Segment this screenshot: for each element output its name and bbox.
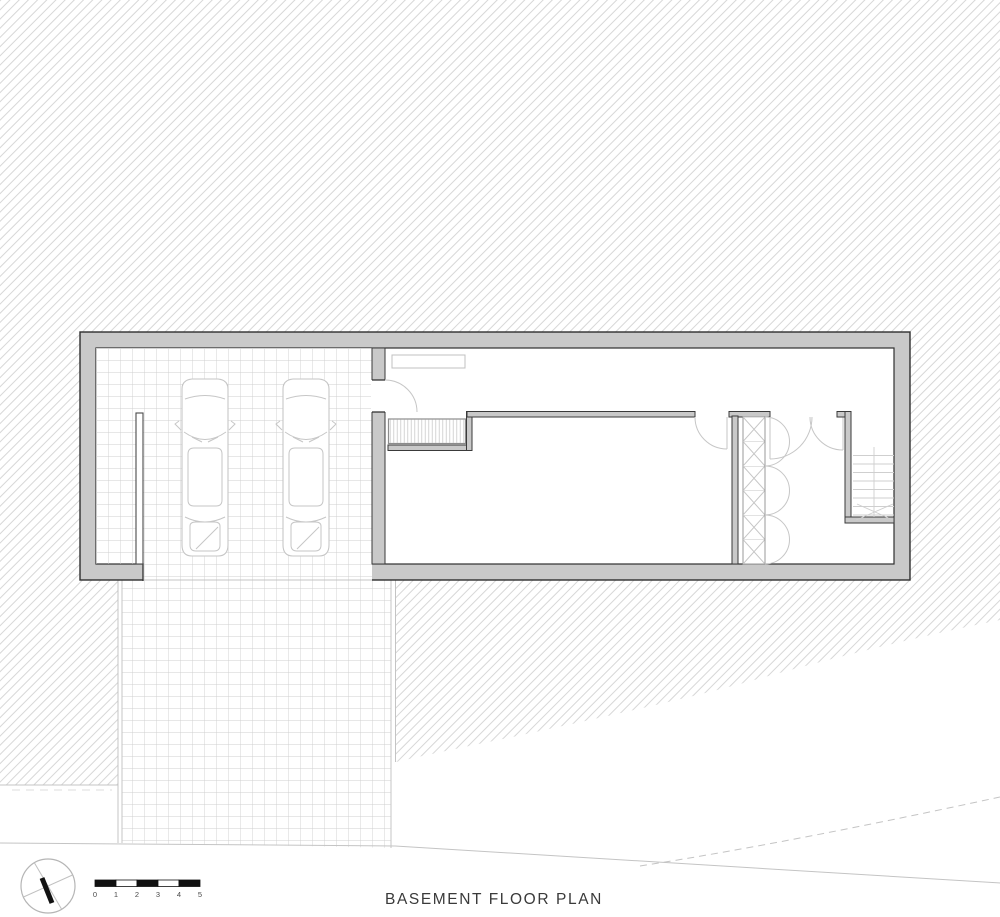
stair-right-wall [845,412,851,523]
scale-bar: 0 1 2 3 4 5 [93,880,202,899]
car-1 [175,379,235,556]
floor-plan-drawing: 0 1 2 3 4 5 BASEMENT FLOOR PLAN [0,0,1000,917]
stair-right-wall-bottom [845,517,894,523]
scale-label-1: 1 [114,890,118,899]
stair-side-wall [388,445,472,451]
terrain-contour-solid [0,843,1000,883]
car-2 [276,379,336,556]
closet-wall [732,416,738,564]
scale-label-5: 5 [198,890,202,899]
garage-wall-stub [136,413,143,564]
scale-label-3: 3 [156,890,160,899]
scale-label-4: 4 [177,890,181,899]
basement-floor-plan-sheet: 0 1 2 3 4 5 BASEMENT FLOOR PLAN [0,0,1000,917]
driveway [118,580,396,848]
garage-opening-paving [143,563,372,581]
terrain-contour-dashed [640,797,1000,866]
building [80,332,910,581]
driveway-edge-east [391,580,396,848]
scale-label-0: 0 [93,890,97,899]
scale-label-2: 2 [135,890,139,899]
stair-main [388,419,472,451]
counter-shelf [392,355,465,368]
page-title: BASEMENT FLOOR PLAN [385,891,603,908]
driveway-edge-west [118,580,122,843]
garage [96,348,372,581]
north-arrow-icon [21,859,75,913]
driveway-paving [122,580,391,848]
